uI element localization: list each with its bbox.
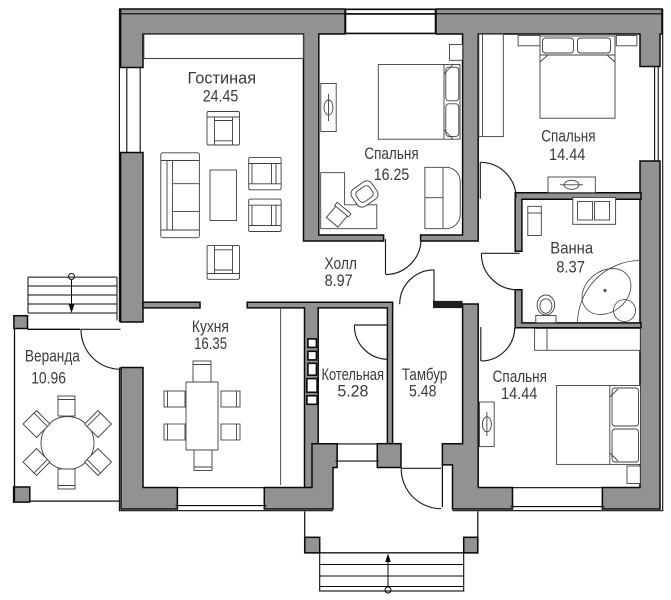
svg-text:10.96: 10.96 [31, 369, 66, 388]
svg-text:24.45: 24.45 [203, 86, 239, 105]
svg-text:Гостиная: Гостиная [188, 69, 257, 88]
svg-text:5.48: 5.48 [409, 382, 436, 401]
svg-text:8.37: 8.37 [556, 258, 585, 277]
svg-text:14.44: 14.44 [501, 384, 537, 403]
svg-text:14.44: 14.44 [549, 145, 585, 164]
svg-text:5.28: 5.28 [337, 382, 368, 401]
svg-text:Холл: Холл [325, 254, 357, 273]
svg-text:Веранда: Веранда [25, 347, 81, 366]
svg-text:Ванна: Ванна [550, 239, 593, 258]
svg-text:Спальня: Спальня [364, 144, 418, 163]
svg-text:Спальня: Спальня [541, 126, 595, 145]
svg-text:16.25: 16.25 [374, 165, 410, 184]
svg-text:16.35: 16.35 [194, 334, 227, 353]
svg-text:8.97: 8.97 [325, 271, 353, 290]
